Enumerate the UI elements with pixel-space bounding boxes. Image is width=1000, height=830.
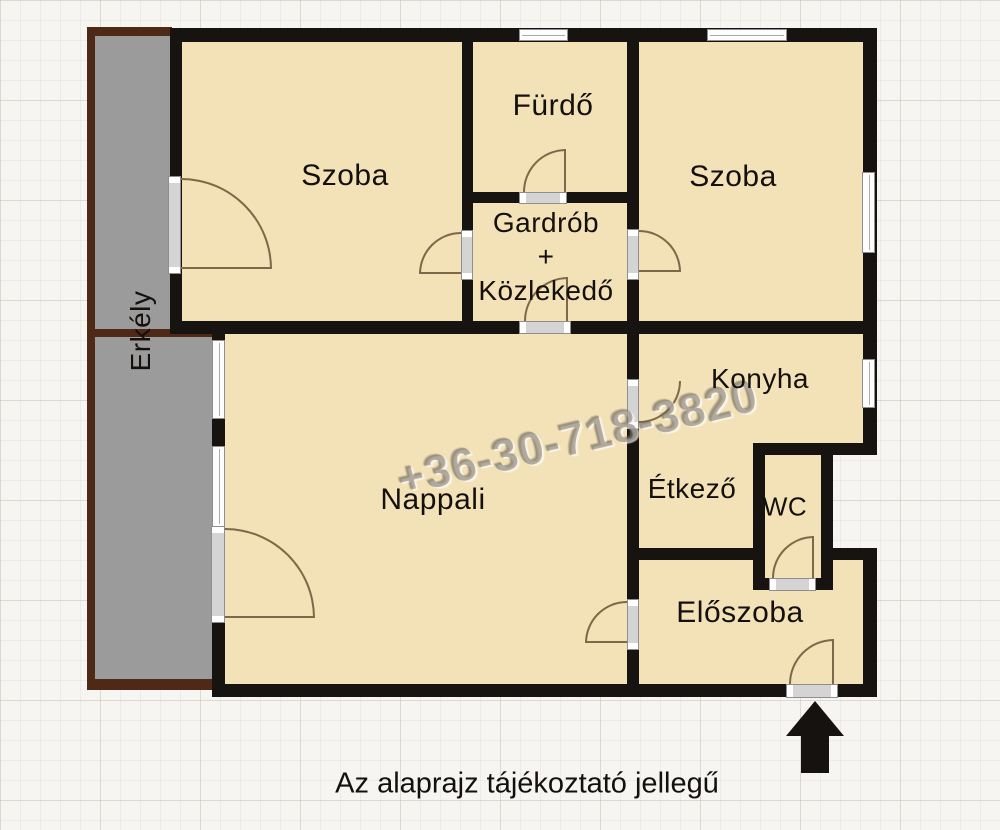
balcony-lower-area xyxy=(95,337,218,679)
door-gardrob-nappali xyxy=(519,321,571,334)
door-furdo xyxy=(519,192,567,204)
window-szoba-right-top xyxy=(707,29,787,41)
balcony-upper-area xyxy=(95,36,172,329)
label-gardrob-line3: Közlekedő xyxy=(478,274,613,308)
entrance-arrow-stem xyxy=(801,734,829,773)
wall-right-lower xyxy=(863,548,877,697)
window-furdo-top xyxy=(519,29,568,41)
label-gardrob-line2: + xyxy=(478,240,613,274)
label-gardrob-kozlekedo: Gardrób + Közlekedő xyxy=(478,206,613,308)
label-szoba-right: Szoba xyxy=(689,160,777,194)
entrance-arrow-icon xyxy=(786,701,844,736)
wall-etkezo-eloszoba xyxy=(627,548,765,560)
label-etkezo: Étkező xyxy=(648,473,737,505)
grid-paper: Szoba Fürdő Gardrób + Közlekedő Szoba Ko… xyxy=(0,0,1000,830)
door-wc xyxy=(769,578,816,591)
door-gardrob-szoba-left xyxy=(461,230,473,280)
label-erkely: Erkély xyxy=(125,291,157,372)
door-nappali-eloszoba xyxy=(627,599,639,650)
wall-wc-top xyxy=(753,443,877,455)
wall-furdo-szoba-right xyxy=(627,28,639,334)
caption-disclaimer: Az alaprajz tájékoztató jellegű xyxy=(335,768,719,801)
label-furdo: Fürdő xyxy=(513,89,594,123)
door-entrance xyxy=(786,684,838,698)
window-konyha-side xyxy=(862,359,875,408)
wall-bottom xyxy=(212,684,877,697)
door-balcony-nappali xyxy=(211,526,225,623)
label-gardrob-line1: Gardrób xyxy=(478,206,613,240)
label-szoba-left: Szoba xyxy=(301,159,389,193)
window-nappali-upper xyxy=(212,340,225,419)
door-gardrob-szoba-right xyxy=(627,229,639,280)
label-nappali: Nappali xyxy=(380,483,485,517)
wall-szoba-furdo xyxy=(462,28,473,334)
door-balcony-szoba xyxy=(168,176,181,274)
window-nappali-lower xyxy=(212,446,225,527)
label-wc: WC xyxy=(763,492,807,523)
label-eloszoba: Előszoba xyxy=(676,596,803,630)
wall-wc-right xyxy=(821,443,833,590)
label-konyha: Konyha xyxy=(711,363,809,395)
window-szoba-right-side xyxy=(862,172,875,253)
